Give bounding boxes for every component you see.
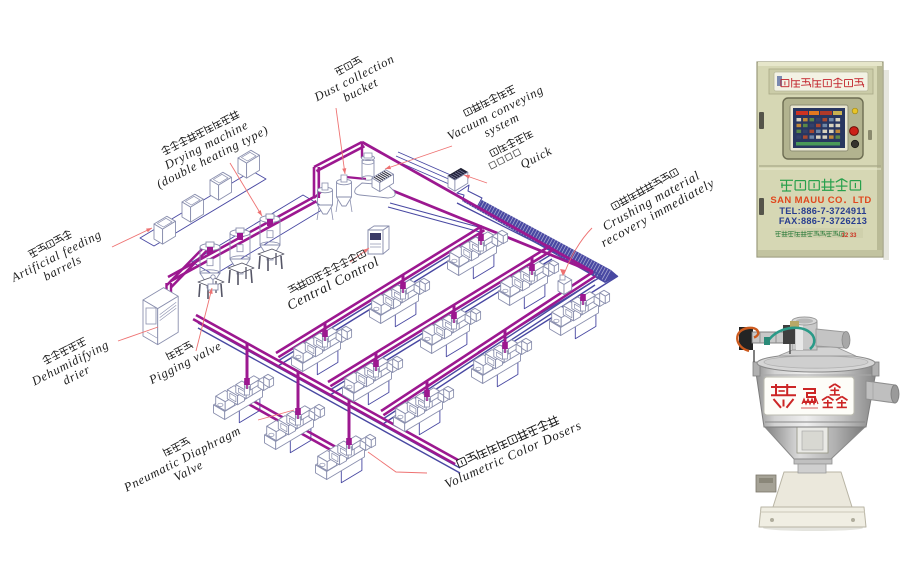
svg-text:12 33: 12 33 xyxy=(841,233,857,239)
svg-text:TEL:886-7-3724911: TEL:886-7-3724911 xyxy=(779,206,866,216)
svg-text:FAX:886-7-3726213: FAX:886-7-3726213 xyxy=(779,216,867,226)
svg-text:SAN MAUU CO．LTD: SAN MAUU CO．LTD xyxy=(770,195,871,206)
